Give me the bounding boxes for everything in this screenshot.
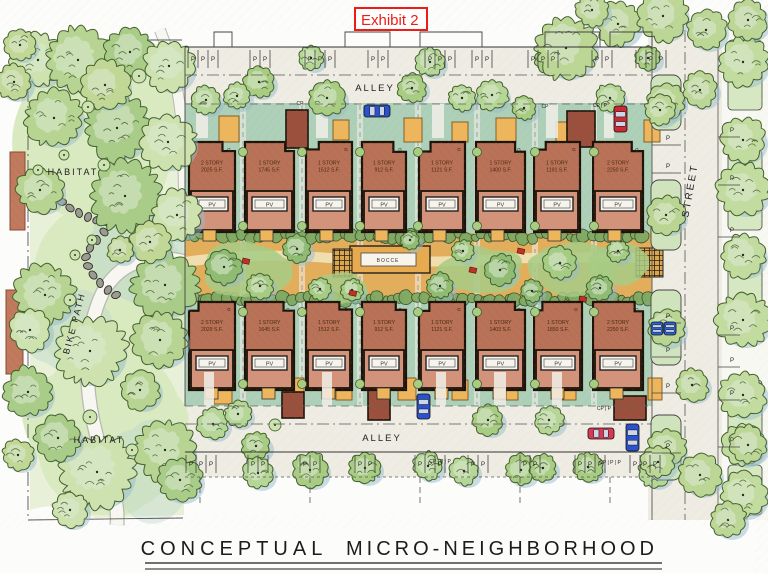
svg-text:P: P: [666, 384, 670, 390]
svg-text:2 STORY: 2 STORY: [607, 161, 630, 167]
svg-text:P: P: [666, 444, 670, 450]
svg-text:P: P: [666, 348, 670, 354]
svg-text:2 STORY: 2 STORY: [201, 320, 224, 326]
svg-text:PV: PV: [380, 362, 388, 368]
svg-text:P: P: [578, 462, 582, 468]
svg-text:CP: CP: [297, 101, 305, 107]
svg-text:1645 S.F.: 1645 S.F.: [259, 327, 281, 333]
svg-text:G: G: [398, 307, 402, 312]
svg-text:P: P: [666, 136, 670, 142]
svg-text:912 S.F.: 912 S.F.: [374, 327, 393, 333]
svg-text:1 STORY: 1 STORY: [258, 320, 281, 326]
svg-text:P: P: [263, 57, 267, 63]
svg-text:1 STORY: 1 STORY: [373, 161, 396, 167]
svg-text:G: G: [344, 147, 348, 152]
svg-text:PV: PV: [325, 203, 333, 209]
svg-text:1 STORY: 1 STORY: [258, 161, 281, 167]
svg-text:G: G: [457, 147, 461, 152]
svg-text:1 STORY: 1 STORY: [318, 320, 341, 326]
svg-text:P: P: [313, 462, 317, 468]
svg-text:P: P: [428, 57, 432, 63]
svg-text:PV: PV: [614, 203, 622, 209]
svg-text:P: P: [438, 57, 442, 63]
svg-text:PV: PV: [438, 362, 446, 368]
svg-text:P: P: [471, 462, 475, 468]
svg-text:ALLEY: ALLEY: [362, 433, 402, 444]
svg-text:P: P: [730, 128, 734, 134]
svg-text:1 STORY: 1 STORY: [431, 161, 454, 167]
svg-text:HABITAT: HABITAT: [74, 435, 125, 445]
svg-text:CP | P: CP | P: [593, 103, 608, 109]
svg-text:2 STORY: 2 STORY: [201, 161, 224, 167]
svg-text:P: P: [730, 438, 734, 444]
svg-text:P: P: [189, 462, 193, 468]
svg-text:ALLEY: ALLEY: [355, 83, 395, 94]
svg-text:P: P: [533, 462, 537, 468]
svg-text:G: G: [286, 147, 290, 152]
svg-text:P: P: [485, 57, 489, 63]
svg-text:P: P: [588, 462, 592, 468]
svg-text:1 STORY: 1 STORY: [546, 161, 569, 167]
svg-text:PV: PV: [380, 203, 388, 209]
svg-text:PV: PV: [438, 203, 446, 209]
svg-text:1512 S.F.: 1512 S.F.: [318, 168, 340, 174]
svg-text:P: P: [448, 57, 452, 63]
svg-text:P: P: [605, 57, 609, 63]
svg-text:HABITAT: HABITAT: [48, 167, 99, 177]
svg-text:G: G: [227, 147, 231, 152]
svg-text:P: P: [211, 57, 215, 63]
svg-text:G: G: [572, 147, 576, 152]
svg-text:G: G: [344, 307, 348, 312]
svg-text:1403 S.F.: 1403 S.F.: [490, 327, 512, 333]
svg-text:P: P: [381, 57, 385, 63]
svg-text:G: G: [457, 307, 461, 312]
svg-text:MICRO-NEIGHBORHOOD: MICRO-NEIGHBORHOOD: [346, 538, 658, 560]
svg-text:CP | P | P: CP | P | P: [599, 460, 621, 466]
svg-text:G: G: [635, 307, 639, 312]
svg-text:PV: PV: [266, 362, 274, 368]
svg-text:BOCCE: BOCCE: [377, 258, 400, 264]
svg-text:P: P: [531, 57, 535, 63]
svg-text:PV: PV: [614, 362, 622, 368]
svg-text:1 STORY: 1 STORY: [431, 320, 454, 326]
svg-text:P: P: [633, 462, 637, 468]
svg-text:P: P: [649, 57, 653, 63]
svg-text:G: G: [635, 147, 639, 152]
svg-text:912 S.F.: 912 S.F.: [374, 168, 393, 174]
svg-text:P: P: [666, 164, 670, 170]
svg-text:PV: PV: [554, 362, 562, 368]
svg-text:2250 S.F.: 2250 S.F.: [607, 168, 629, 174]
svg-text:1121 S.F.: 1121 S.F.: [431, 327, 453, 333]
svg-text:P: P: [643, 462, 647, 468]
svg-text:1191 S.F.: 1191 S.F.: [546, 168, 568, 174]
svg-text:P: P: [371, 57, 375, 63]
svg-text:2025 S.F.: 2025 S.F.: [201, 168, 223, 174]
svg-text:1400 S.F.: 1400 S.F.: [490, 168, 512, 174]
svg-text:P: P: [358, 462, 362, 468]
svg-text:P: P: [201, 57, 205, 63]
svg-text:G: G: [517, 307, 521, 312]
svg-text:P: P: [639, 57, 643, 63]
svg-text:P: P: [730, 326, 734, 332]
svg-text:G: G: [227, 307, 231, 312]
svg-text:P: P: [191, 57, 195, 63]
svg-text:P: P: [481, 462, 485, 468]
svg-text:PV: PV: [266, 203, 274, 209]
svg-text:P: P: [730, 228, 734, 234]
svg-text:G: G: [574, 307, 578, 312]
svg-text:P: P: [318, 57, 322, 63]
svg-text:PV: PV: [208, 362, 216, 368]
svg-text:Exhibit 2: Exhibit 2: [361, 12, 419, 29]
svg-text:G: G: [517, 147, 521, 152]
svg-text:1121 S.F.: 1121 S.F.: [431, 168, 453, 174]
svg-text:P: P: [308, 57, 312, 63]
svg-text:P: P: [730, 176, 734, 182]
svg-text:1745 S.F.: 1745 S.F.: [259, 168, 281, 174]
svg-text:2250 S.F.: 2250 S.F.: [607, 327, 629, 333]
svg-text:P: P: [659, 57, 663, 63]
svg-text:2029 S.F.: 2029 S.F.: [201, 327, 223, 333]
svg-text:CONCEPTUAL: CONCEPTUAL: [141, 538, 328, 560]
svg-text:PV: PV: [325, 362, 333, 368]
svg-text:PV: PV: [497, 203, 505, 209]
svg-text:PV: PV: [497, 362, 505, 368]
svg-text:2 STORY: 2 STORY: [607, 320, 630, 326]
svg-text:CP | P | P: CP | P | P: [429, 459, 451, 465]
svg-text:P: P: [730, 358, 734, 364]
svg-text:1 STORY: 1 STORY: [547, 320, 570, 326]
svg-text:P: P: [541, 57, 545, 63]
svg-text:1 STORY: 1 STORY: [318, 161, 341, 167]
svg-text:1 STORY: 1 STORY: [489, 161, 512, 167]
svg-text:P: P: [199, 462, 203, 468]
svg-text:CP | P: CP | P: [597, 406, 612, 412]
svg-text:P: P: [303, 462, 307, 468]
svg-text:P: P: [251, 462, 255, 468]
svg-text:P: P: [418, 462, 422, 468]
svg-text:P: P: [209, 462, 213, 468]
svg-text:P: P: [475, 57, 479, 63]
svg-text:P: P: [523, 462, 527, 468]
svg-text:P: P: [261, 462, 265, 468]
svg-text:PV: PV: [208, 203, 216, 209]
svg-text:CP: CP: [542, 104, 550, 110]
svg-text:G: G: [398, 147, 402, 152]
svg-text:P: P: [653, 462, 657, 468]
svg-text:P: P: [368, 462, 372, 468]
svg-text:1 STORY: 1 STORY: [373, 320, 396, 326]
svg-text:P: P: [328, 57, 332, 63]
svg-text:PV: PV: [553, 203, 561, 209]
svg-text:1 STORY: 1 STORY: [489, 320, 512, 326]
svg-text:P: P: [730, 391, 734, 397]
svg-text:P: P: [666, 314, 670, 320]
svg-text:P: P: [253, 57, 257, 63]
svg-text:P: P: [551, 57, 555, 63]
svg-text:G: G: [286, 307, 290, 312]
svg-text:1850 S.F.: 1850 S.F.: [547, 327, 569, 333]
svg-text:1512 S.F.: 1512 S.F.: [318, 327, 340, 333]
svg-text:P: P: [595, 57, 599, 63]
